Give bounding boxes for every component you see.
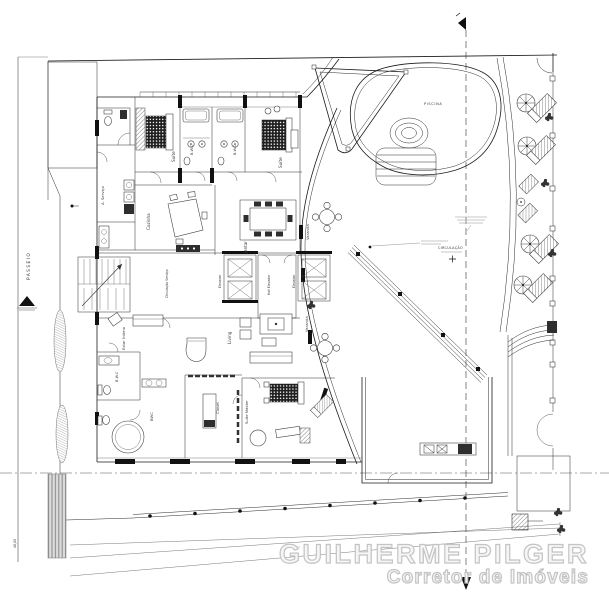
label-varanda-2: Varanda	[304, 316, 309, 332]
shrub-icon	[541, 179, 549, 187]
label-hall-elevador: Hall Elevador	[267, 274, 271, 295]
label-elevador-2: Elevador	[292, 274, 296, 288]
label-varanda-1: Varanda	[305, 224, 310, 240]
left-dimension: 48,00	[13, 539, 17, 548]
pool-label: PISCINA	[424, 102, 442, 106]
section-line	[456, 13, 471, 590]
watermark-name: GUILHERME PILGER	[279, 540, 589, 568]
label-estar-intimo: Estar Íntimo	[121, 326, 126, 350]
bed	[146, 116, 166, 148]
label-jantar: Jantar	[243, 241, 248, 254]
label-suite-1: Suíte	[171, 151, 176, 162]
label-closet: Closet	[215, 402, 220, 414]
label-a-servico: A. Serviço	[100, 185, 105, 205]
label-cozinha: Cozinha	[146, 213, 151, 230]
label-elevador-1: Elevador	[218, 274, 222, 288]
pool-area: PISCINA	[312, 63, 501, 185]
circulacao-label: CIRCULAÇÃO	[438, 245, 463, 250]
label-bwc-1: B.W.C	[190, 144, 194, 155]
label-suite-2: Suíte	[278, 157, 283, 168]
site-boundary: PASSEIO 48,00	[0, 53, 609, 562]
floor-plan-drawing: PASSEIO 48,00	[0, 0, 609, 600]
shrub-icon	[557, 525, 565, 533]
bed	[270, 384, 298, 402]
bed	[262, 120, 286, 150]
label-bwc-2: B.W.C	[233, 144, 237, 155]
grill-icon	[512, 514, 528, 530]
outbuilding	[517, 456, 570, 511]
garden-strip: CIRCULAÇÃO	[438, 57, 558, 470]
shrub-icon	[545, 113, 553, 121]
street-label: PASSEIO	[26, 252, 32, 280]
label-bwc-3: B.W.C	[115, 371, 119, 382]
pool-steps	[376, 148, 436, 185]
planting-bed	[56, 405, 68, 463]
flag-icon	[458, 17, 466, 30]
ramp-stairs	[48, 474, 66, 558]
label-suite-master: Suíte Máster	[244, 400, 249, 424]
planting-bed	[54, 310, 66, 372]
street-arrow-icon	[17, 296, 37, 310]
label-bwc-master: BWC	[149, 412, 154, 421]
shrub-icon	[554, 508, 562, 516]
round-tub	[112, 421, 144, 453]
label-circulacao-servico: Circulação Serviço	[165, 269, 169, 298]
spa-icon	[390, 118, 428, 148]
shrub-icon	[307, 301, 315, 309]
watermark-subtitle: Corretor de Imóveis	[279, 568, 589, 588]
floor-plan-page: PASSEIO 48,00	[0, 0, 609, 600]
piano	[186, 338, 206, 362]
watermark: GUILHERME PILGER Corretor de Imóveis	[279, 540, 589, 588]
label-living: Living	[227, 331, 232, 344]
